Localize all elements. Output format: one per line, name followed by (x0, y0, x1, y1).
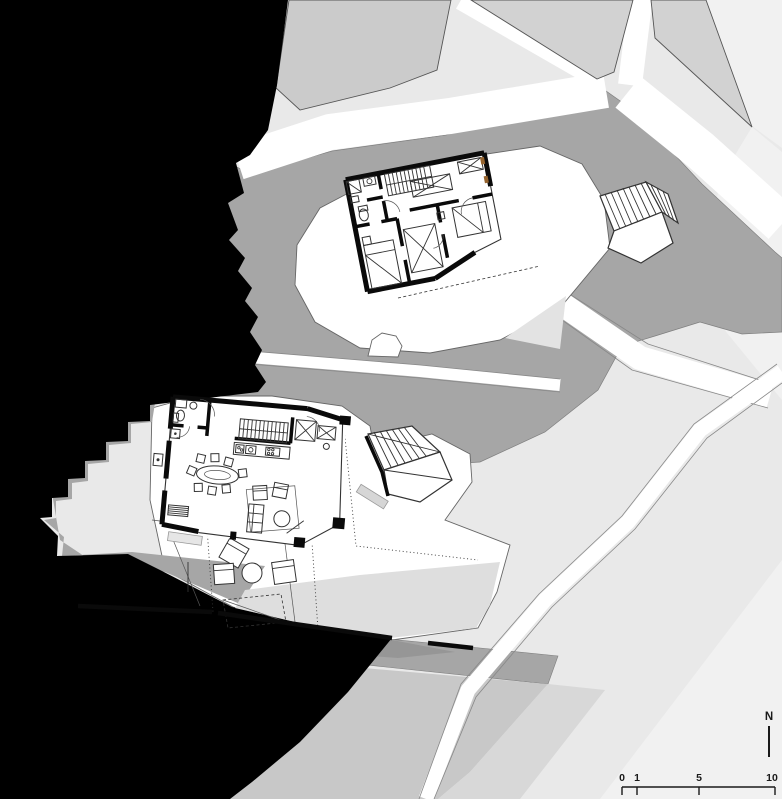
corner-post (332, 517, 345, 529)
site-plan-page: N 0 1 5 10 (0, 0, 782, 799)
corner-post (339, 415, 351, 425)
site-plan-drawing: N 0 1 5 10 (0, 0, 782, 799)
glass-post (230, 531, 237, 539)
road-branch-northeast (630, 0, 641, 85)
corner-post (293, 537, 305, 548)
scale-label: 0 (619, 772, 625, 784)
lower-house-floor (161, 397, 347, 548)
scale-label: 10 (766, 772, 778, 784)
terrace-table (242, 563, 262, 583)
north-label: N (765, 711, 773, 723)
scale-label: 5 (696, 772, 702, 784)
lower-house-plan (147, 396, 354, 552)
scale-label: 1 (634, 772, 640, 784)
